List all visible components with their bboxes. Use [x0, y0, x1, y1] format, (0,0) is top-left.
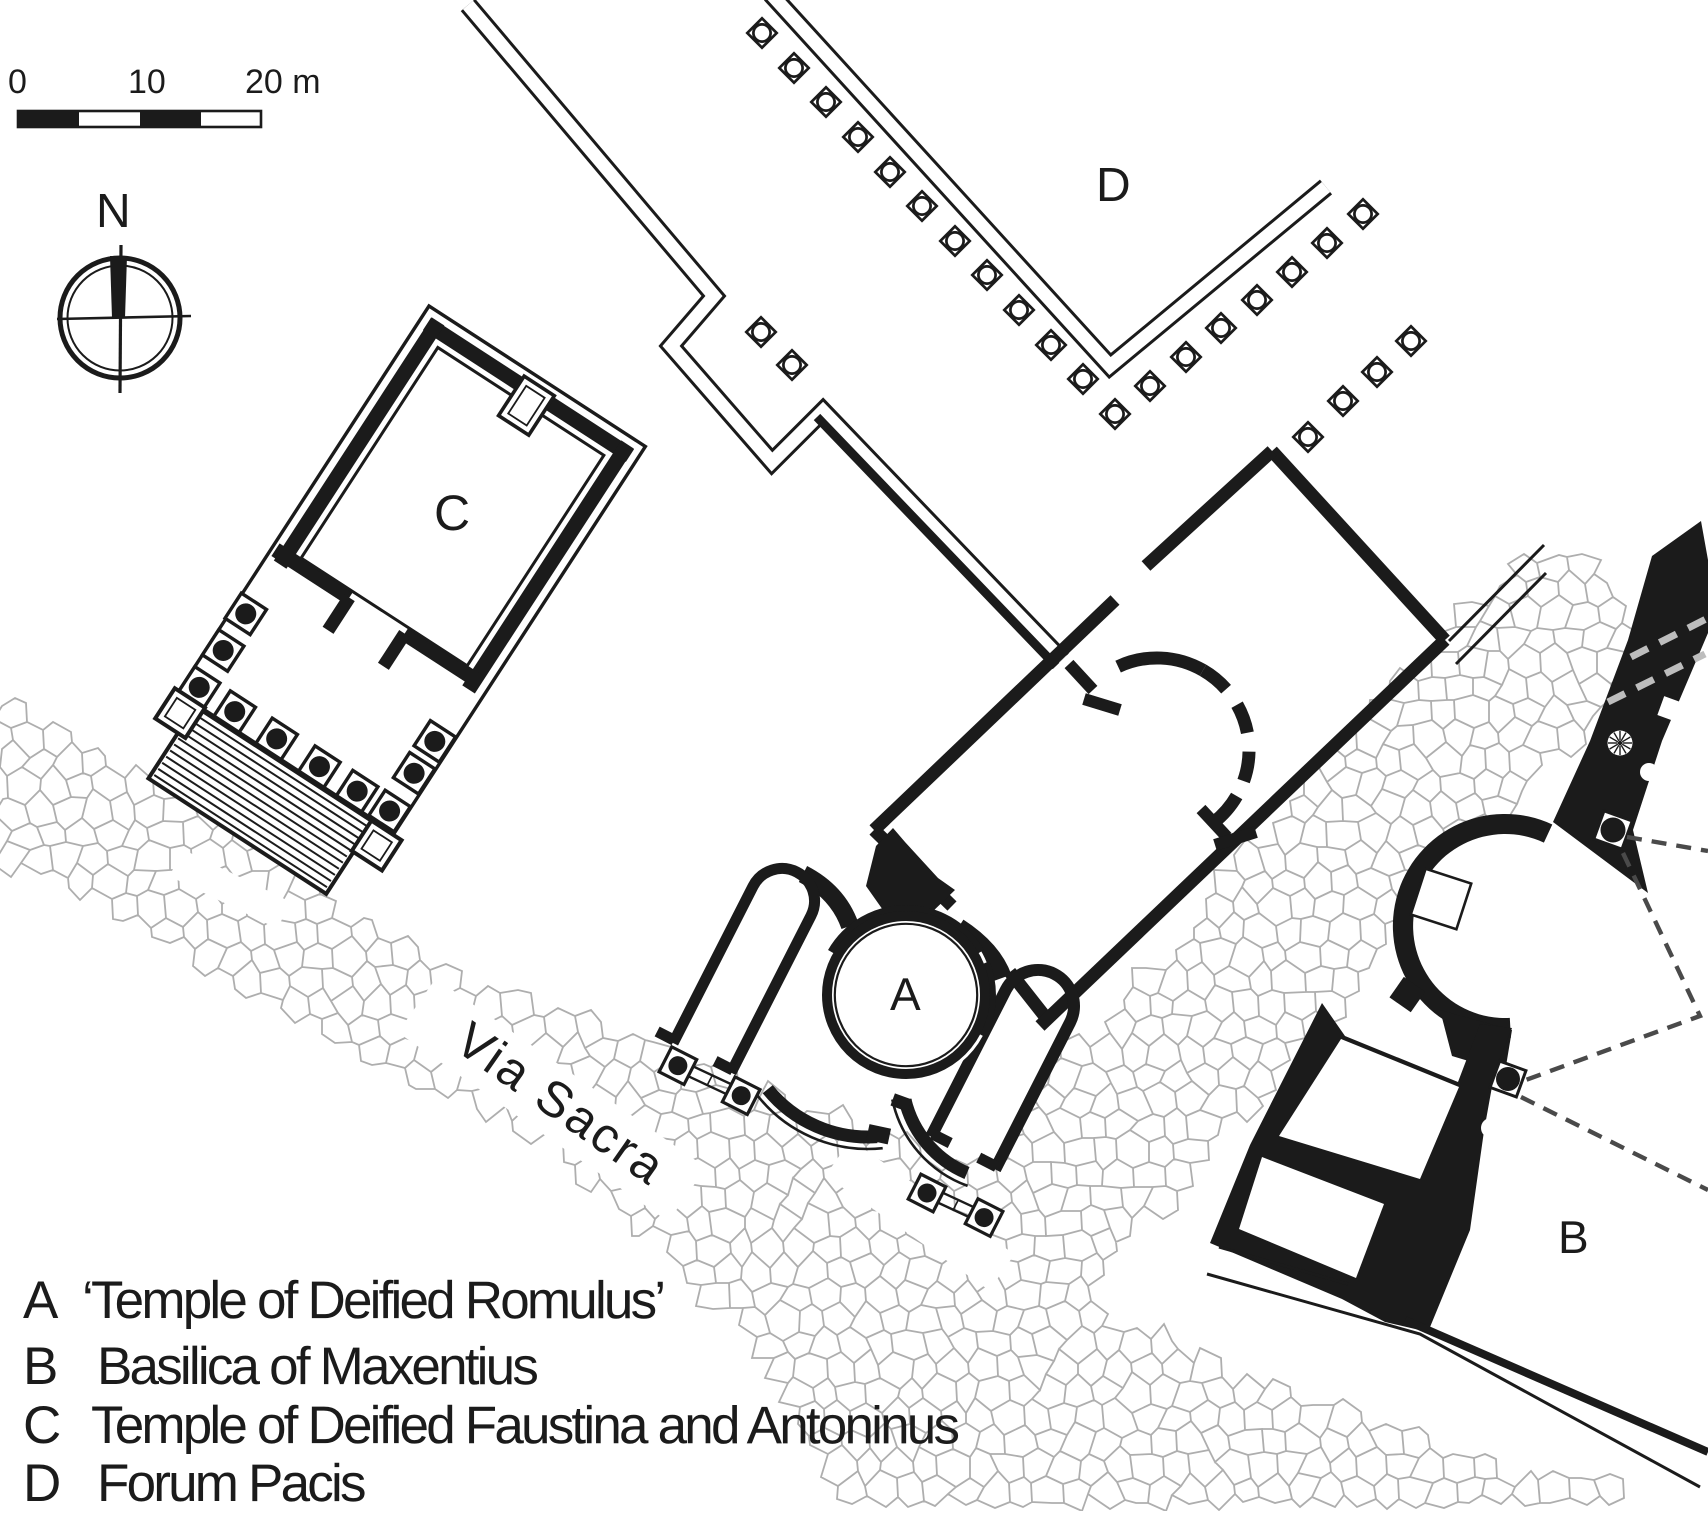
svg-text:B: B [23, 1337, 56, 1396]
svg-text:D: D [1096, 159, 1131, 212]
svg-text:10: 10 [128, 63, 166, 101]
svg-text:A: A [23, 1271, 59, 1330]
svg-text:0: 0 [8, 63, 27, 101]
svg-text:Temple of Deified Faustina and: Temple of Deified Faustina and Antoninus [91, 1396, 959, 1455]
svg-text:C: C [434, 485, 470, 541]
svg-text:‘Temple of Deified Romulus’: ‘Temple of Deified Romulus’ [82, 1271, 663, 1330]
svg-text:A: A [890, 968, 921, 1020]
svg-text:N: N [96, 185, 131, 238]
svg-text:20 m: 20 m [245, 63, 321, 101]
svg-text:D: D [23, 1454, 59, 1511]
svg-text:Basilica of Maxentius: Basilica of Maxentius [97, 1337, 537, 1396]
svg-text:C: C [23, 1396, 60, 1455]
svg-text:B: B [1558, 1211, 1589, 1263]
svg-text:Forum Pacis: Forum Pacis [97, 1454, 365, 1511]
